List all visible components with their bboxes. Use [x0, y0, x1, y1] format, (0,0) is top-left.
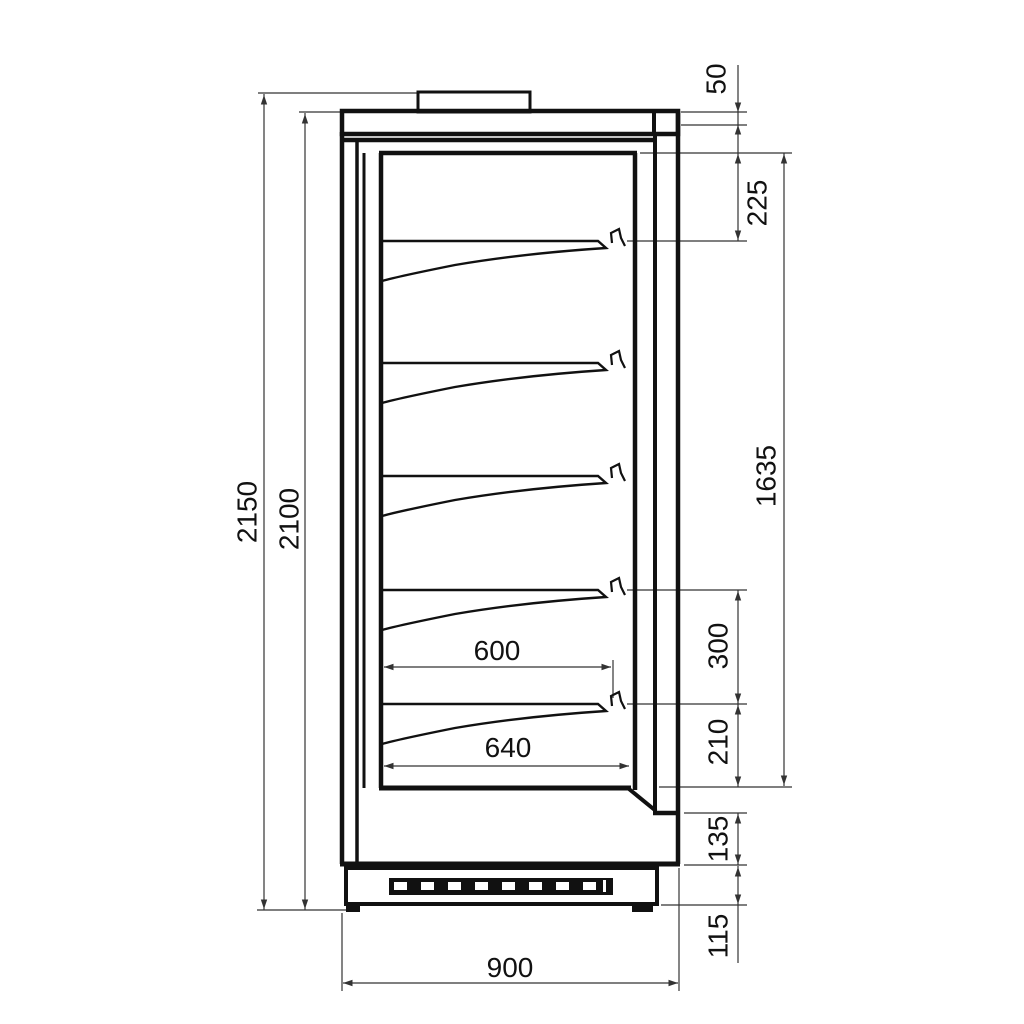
- foot-left: [346, 904, 360, 912]
- dim-canopy-height: 50: [701, 63, 732, 94]
- dim-well-depth: 640: [485, 732, 532, 763]
- dim-top-to-first-shelf: 225: [742, 180, 773, 227]
- cabinet-side-view-drawing: 2150 2100 50 225 1635 300 210 135 115 60…: [0, 0, 1024, 1024]
- dim-overall-height: 2150: [232, 481, 263, 543]
- grille-slot: [529, 882, 542, 890]
- dim-bottom-shelf-clearance: 210: [703, 719, 734, 766]
- dim-plinth-height: 115: [703, 914, 734, 959]
- dim-shelf-spacing: 300: [703, 623, 734, 670]
- dim-interior-height: 1635: [751, 445, 782, 507]
- grille-slot: [603, 880, 606, 892]
- grille-slot: [421, 882, 434, 890]
- dim-front-lower-panel: 135: [703, 816, 734, 863]
- grille-slot: [448, 882, 461, 890]
- dim-shelf-depth: 600: [474, 635, 521, 666]
- grille-slot: [556, 882, 569, 890]
- grille-slot: [502, 882, 515, 890]
- dim-body-height: 2100: [274, 488, 305, 550]
- technical-drawing-canvas: 2150 2100 50 225 1635 300 210 135 115 60…: [0, 0, 1024, 1024]
- ventilation-grille: [389, 878, 613, 895]
- grille-slot: [583, 882, 596, 890]
- grille-slot: [475, 882, 488, 890]
- dim-overall-depth: 900: [487, 952, 534, 983]
- grille-slot: [394, 882, 407, 890]
- foot-right: [632, 904, 653, 912]
